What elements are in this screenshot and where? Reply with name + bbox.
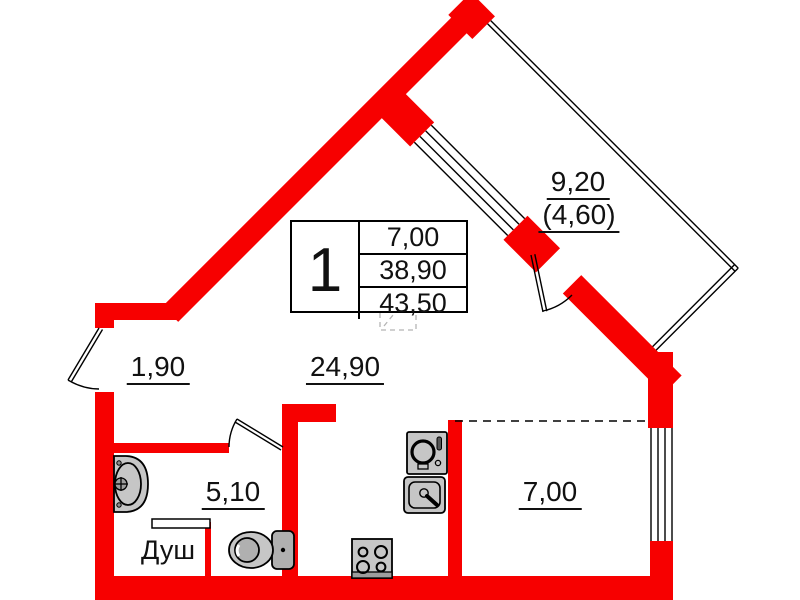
bathroom-door-icon: [229, 419, 283, 450]
bathroom-top-wall: [113, 443, 229, 453]
area-row-1: 7,00: [360, 222, 466, 253]
right-window-icon: [649, 428, 674, 541]
living-area-label: 24,90: [306, 353, 384, 385]
kitchen-wall: [448, 420, 462, 576]
shower-screen: [152, 519, 210, 528]
toilet-icon: [229, 531, 294, 569]
apartment-info-table: 1 7,00 38,90 43,50: [290, 220, 468, 313]
balcony-reduced-area-text: (4,60): [538, 201, 619, 233]
balcony-reduced-area-label: (4,60): [538, 201, 619, 233]
floor-plan: 1 7,00 38,90 43,50 9,20 (4,60) 1,90 24,9…: [0, 0, 800, 600]
shower-label: Душ: [141, 537, 195, 564]
stove-icon: [352, 539, 392, 578]
area-row-2: 38,90: [360, 253, 466, 286]
shower-partition-wall: [205, 522, 211, 576]
right-wall-lower: [650, 541, 673, 579]
bathroom-area-label: 5,10: [202, 478, 265, 510]
entry-door-jamb: [95, 318, 114, 328]
balcony-area-label: 9,20: [547, 168, 610, 200]
entrance-door-icon: [68, 328, 103, 389]
balcony-area-text: 9,20: [547, 168, 610, 200]
apartment-number: 1: [292, 222, 360, 319]
room-area-label: 7,00: [519, 478, 582, 510]
sink-icon: [114, 456, 148, 512]
bathroom-area-text: 5,10: [202, 478, 265, 510]
kitchen-sink-icon: [404, 477, 445, 513]
hallway-area-text: 1,90: [127, 353, 190, 385]
bathroom-wall-stub: [282, 404, 336, 422]
balcony-door-icon: [531, 254, 572, 312]
shower-label-text: Душ: [141, 535, 195, 565]
right-wall-upper: [648, 352, 673, 428]
room-area-text: 7,00: [519, 478, 582, 510]
hallway-area-label: 1,90: [127, 353, 190, 385]
top-left-wall: [95, 303, 177, 320]
washing-machine-icon: [407, 432, 447, 474]
living-area-text: 24,90: [306, 353, 384, 385]
area-row-3: 43,50: [360, 286, 466, 319]
bottom-wall: [95, 576, 673, 600]
left-wall: [95, 392, 114, 600]
